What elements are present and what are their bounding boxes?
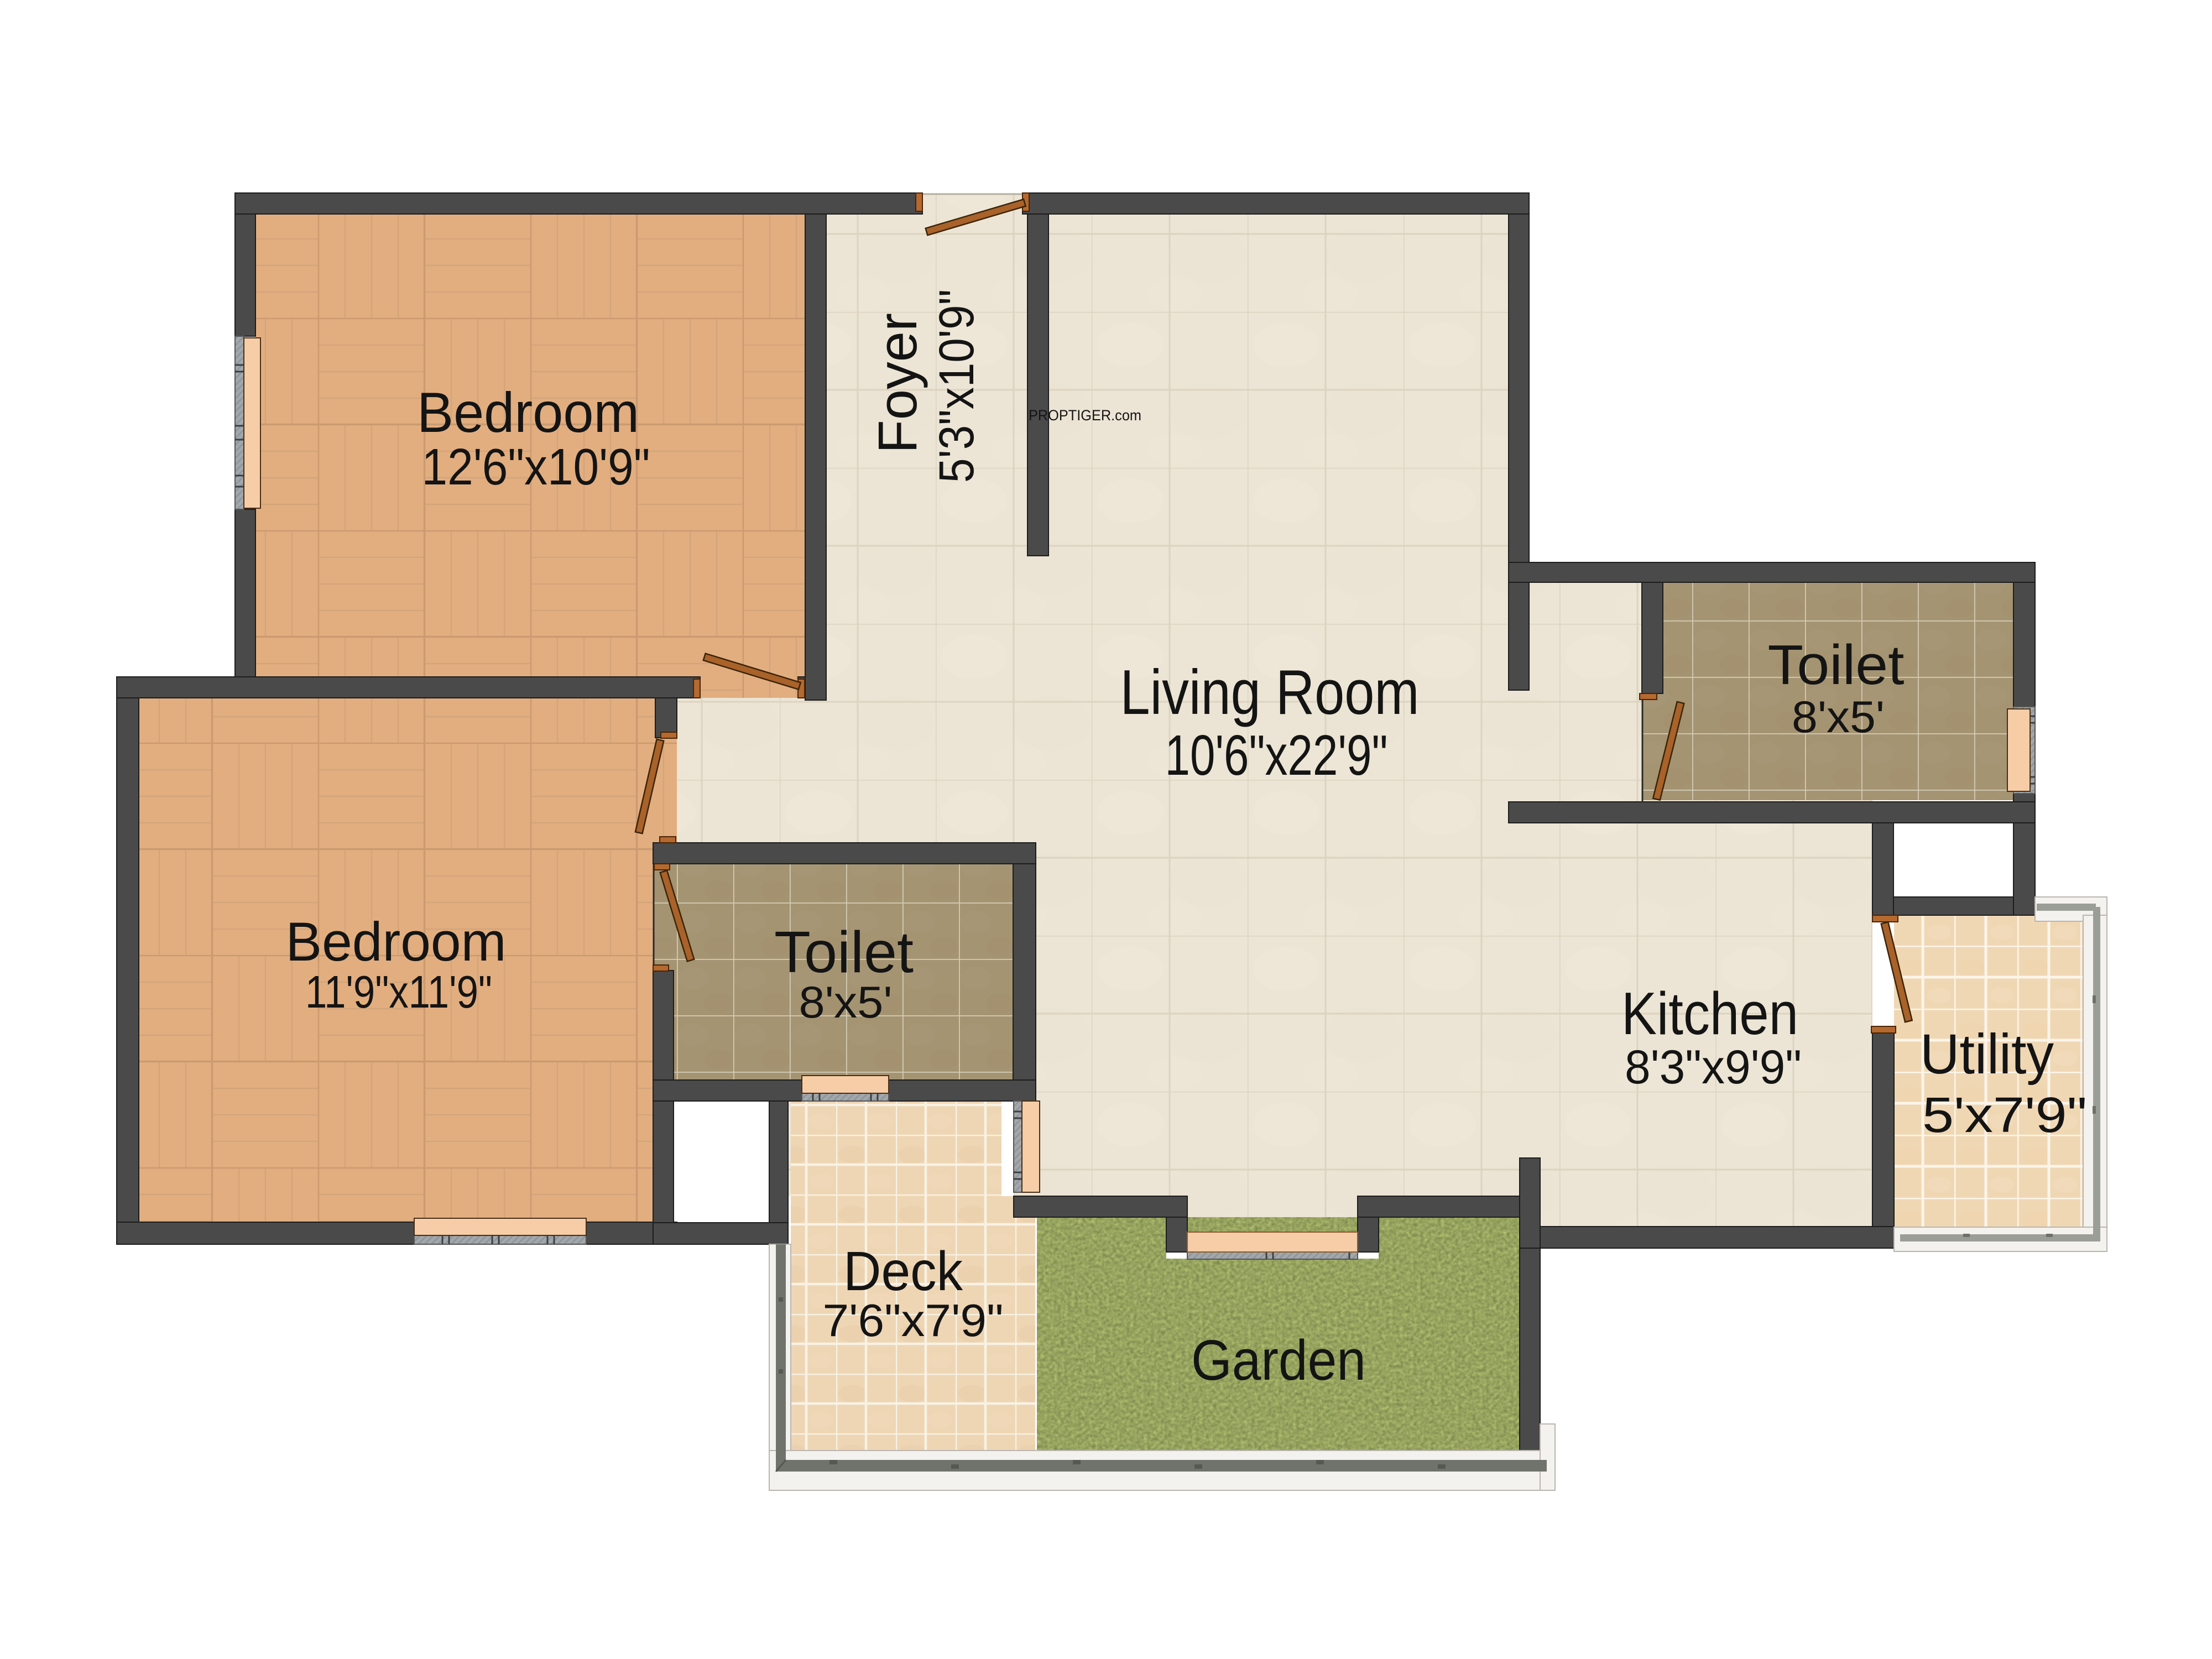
svg-text:Kitchen: Kitchen: [1621, 980, 1798, 1047]
svg-text:7'6"x7'9": 7'6"x7'9": [823, 1295, 1004, 1346]
svg-text:10'6"x22'9": 10'6"x22'9": [1165, 723, 1388, 787]
svg-text:PROPTIGER.com: PROPTIGER.com: [1029, 407, 1141, 424]
svg-text:11'9"x11'9": 11'9"x11'9": [305, 966, 492, 1018]
svg-text:Living Room: Living Room: [1120, 658, 1420, 728]
svg-text:Bedroom: Bedroom: [417, 381, 639, 444]
svg-text:Deck: Deck: [843, 1240, 963, 1302]
svg-text:Utility: Utility: [1920, 1022, 2054, 1086]
svg-text:Bedroom: Bedroom: [286, 911, 507, 972]
svg-text:Toilet: Toilet: [1768, 634, 1905, 696]
svg-text:8'x5': 8'x5': [1792, 692, 1885, 742]
svg-text:5'3"x10'9": 5'3"x10'9": [928, 289, 984, 483]
svg-text:8'3"x9'9": 8'3"x9'9": [1625, 1041, 1802, 1094]
svg-text:Toilet: Toilet: [774, 920, 914, 985]
svg-text:Garden: Garden: [1191, 1328, 1366, 1392]
svg-text:12'6"x10'9": 12'6"x10'9": [422, 438, 650, 495]
svg-text:5'x7'9": 5'x7'9": [1922, 1088, 2087, 1143]
svg-text:Foyer: Foyer: [867, 313, 928, 453]
svg-text:8'x5': 8'x5': [799, 978, 893, 1027]
